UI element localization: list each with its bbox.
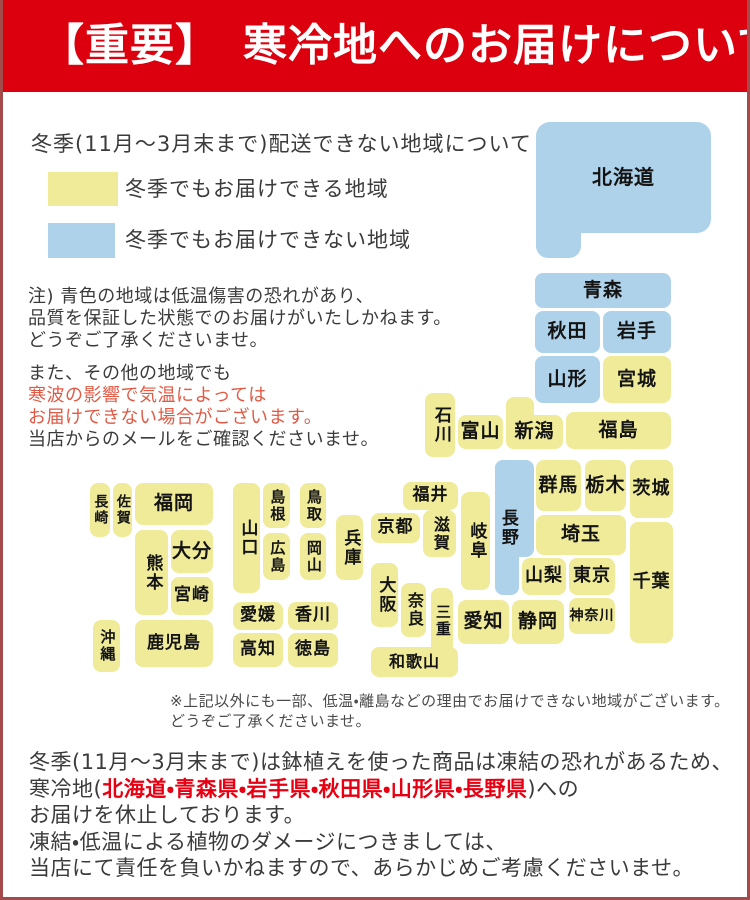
note-line: どうぞご了承くださいませ。 xyxy=(28,330,452,352)
legend-swatch-deliverable xyxy=(48,172,118,206)
prefecture-hokkaido: 北海道 xyxy=(536,122,711,233)
prefecture-fukui: 福井 xyxy=(403,482,458,510)
prefecture-okayama: 岡山 xyxy=(300,533,326,580)
prefecture-toyama: 富山 xyxy=(458,415,503,449)
prefecture-gifu: 岐阜 xyxy=(461,492,490,590)
footer-cold-region-list: 北海道・青森県・岩手県・秋田県・山形県・長野県 xyxy=(102,777,527,801)
prefecture-ishikawa: 石川 xyxy=(425,393,455,457)
prefecture-shizuoka: 静岡 xyxy=(512,600,564,644)
footnote-line: どうぞご了承くださいませ。 xyxy=(170,711,730,731)
prefecture-tottori: 鳥取 xyxy=(300,483,326,528)
note-line-warning: 寒波の影響で気温によっては xyxy=(28,385,379,407)
prefecture-tochigi: 栃木 xyxy=(585,460,626,511)
prefecture-mie: 三重 xyxy=(431,588,453,654)
legend-label-not-deliverable: 冬季でもお届けできない地域 xyxy=(125,223,411,258)
prefecture-kyoto: 京都 xyxy=(371,513,420,543)
prefecture-kumamoto: 熊本 xyxy=(135,530,168,615)
prefecture-nagano-main xyxy=(495,460,534,557)
prefecture-kanagawa: 神奈川 xyxy=(569,598,615,634)
note-line-warning: お届けできない場合がございます。 xyxy=(28,407,379,429)
legend-title: 冬季(11月～3月末まで)配送できない地域について xyxy=(31,128,532,158)
footer-line-prefectures: 寒冷地(北海道・青森県・岩手県・秋田県・山形県・長野県)への xyxy=(29,776,733,803)
prefecture-wakayama: 和歌山 xyxy=(371,647,458,677)
prefecture-oita: 大分 xyxy=(171,530,213,573)
footer-notice: 冬季(11月～3月末まで)は鉢植えを使った商品は凍結の恐れがあるため、 寒冷地(… xyxy=(29,749,733,882)
note-other-region: また、その他の地域でも 寒波の影響で気温によっては お届けできない場合がございま… xyxy=(28,363,379,451)
footer-line: 凍結・低温による植物のダメージにつきましては、 xyxy=(29,829,733,856)
prefecture-yamanashi: 山梨 xyxy=(522,558,566,595)
prefecture-kagoshima: 鹿児島 xyxy=(135,620,213,667)
prefecture-chiba: 千葉 xyxy=(630,522,673,643)
prefecture-niigata: 新潟 xyxy=(506,415,563,449)
map-footnote: ※上記以外にも一部、低温・離島などの理由でお届けできない地域がございます。 どう… xyxy=(170,691,730,731)
footer-line: お届けを休止しております。 xyxy=(29,802,733,829)
prefecture-yamagata: 山形 xyxy=(535,356,600,403)
page-title: 【重要】 寒冷地へのお届けについて xyxy=(0,0,750,92)
prefecture-fukuoka: 福岡 xyxy=(135,483,213,525)
prefecture-hyogo: 兵庫 xyxy=(336,515,363,580)
legend-label-deliverable: 冬季でもお届けできる地域 xyxy=(125,172,389,206)
note-line: 品質を保証した状態でのお届けがいたしかねます。 xyxy=(28,308,452,330)
prefecture-shimane: 島根 xyxy=(263,483,290,528)
prefecture-iwate: 岩手 xyxy=(603,311,671,353)
cold-region-delivery-notice: 【重要】 寒冷地へのお届けについて 冬季(11月～3月末まで)配送できない地域に… xyxy=(0,0,750,900)
prefecture-akita: 秋田 xyxy=(535,311,600,353)
prefecture-niigata-north xyxy=(506,397,534,449)
footnote-line: ※上記以外にも一部、低温・離島などの理由でお届けできない地域がございます。 xyxy=(170,691,730,711)
note-line: 注) 青色の地域は低温傷害の恐れがあり、 xyxy=(28,286,452,308)
footer-line: 当店にて責任を負いかねますので、あらかじめご考慮くださいませ。 xyxy=(29,855,733,882)
prefecture-fukushima: 福島 xyxy=(566,412,671,449)
footer-line: 冬季(11月～3月末まで)は鉢植えを使った商品は凍結の恐れがあるため、 xyxy=(29,749,733,776)
prefecture-shiga: 滋賀 xyxy=(423,510,456,557)
note-blue-region: 注) 青色の地域は低温傷害の恐れがあり、 品質を保証した状態でのお届けがいたしか… xyxy=(28,286,452,352)
prefecture-yamaguchi: 山口 xyxy=(233,483,260,593)
legend-swatch-not-deliverable xyxy=(48,223,115,258)
note-line: また、その他の地域でも xyxy=(28,363,379,385)
prefecture-gunma: 群馬 xyxy=(536,460,581,511)
note-line: 当店からのメールをご確認くださいませ。 xyxy=(28,429,379,451)
footer-text: 寒冷地( xyxy=(29,777,102,801)
footer-text: )への xyxy=(527,777,579,801)
prefecture-miyagi: 宮城 xyxy=(603,356,671,403)
prefecture-aichi: 愛知 xyxy=(458,600,509,644)
prefecture-nara: 奈良 xyxy=(401,583,426,637)
prefecture-osaka: 大阪 xyxy=(371,563,398,627)
prefecture-saga: 佐賀 xyxy=(113,483,132,537)
prefecture-okinawa: 沖縄 xyxy=(93,620,120,672)
prefecture-kagawa: 香川 xyxy=(288,602,338,630)
prefecture-nagasaki: 長崎 xyxy=(90,483,110,537)
prefecture-tokyo: 東京 xyxy=(569,558,615,595)
prefecture-hiroshima: 広島 xyxy=(263,533,290,580)
prefecture-hokkaido-foot xyxy=(536,200,581,258)
prefecture-nagano: 長野 xyxy=(495,460,519,595)
prefecture-aomori: 青森 xyxy=(535,273,671,308)
prefecture-saitama: 埼玉 xyxy=(536,515,626,555)
prefecture-ehime: 愛媛 xyxy=(233,602,283,630)
prefecture-miyazaki: 宮崎 xyxy=(171,577,213,615)
prefecture-kochi: 高知 xyxy=(233,633,283,667)
prefecture-ibaraki: 茨城 xyxy=(630,460,673,518)
prefecture-tokushima: 徳島 xyxy=(288,633,338,667)
